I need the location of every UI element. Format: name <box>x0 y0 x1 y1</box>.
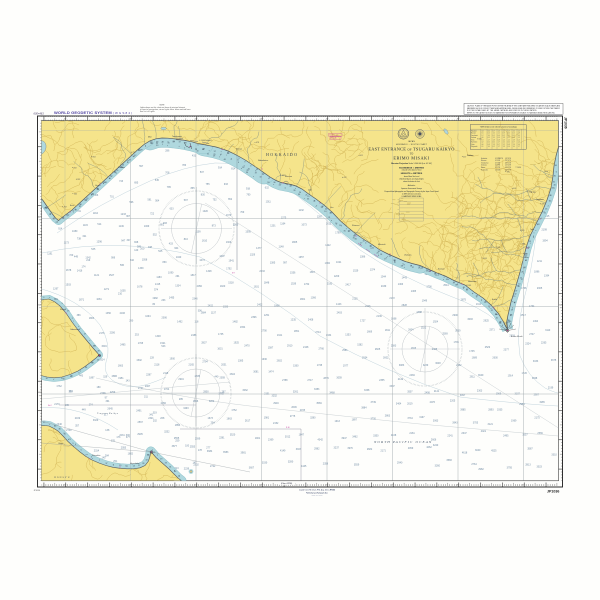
svg-text:28: 28 <box>521 272 523 274</box>
svg-text:25: 25 <box>529 241 531 243</box>
svg-text:Shiriya: Shiriya <box>60 308 67 311</box>
svg-text:198: 198 <box>69 391 74 394</box>
svg-text:1201: 1201 <box>270 225 276 228</box>
svg-text:2175: 2175 <box>534 416 540 419</box>
svg-text:Usujiri: Usujiri <box>95 184 101 187</box>
svg-text:2863: 2863 <box>385 414 391 417</box>
svg-text:3040: 3040 <box>475 449 481 452</box>
svg-text:1334: 1334 <box>175 284 181 287</box>
svg-text:274: 274 <box>89 403 94 406</box>
svg-text:1183: 1183 <box>156 276 162 279</box>
svg-text:2837: 2837 <box>201 341 207 344</box>
svg-text:1.5: 1.5 <box>493 133 495 135</box>
svg-text:1969: 1969 <box>511 420 517 423</box>
svg-text:2910: 2910 <box>287 344 293 347</box>
svg-text:1339: 1339 <box>138 267 144 270</box>
svg-text:26: 26 <box>313 201 315 203</box>
svg-text:1560: 1560 <box>233 224 239 227</box>
svg-text:27: 27 <box>403 265 405 267</box>
svg-text:2775: 2775 <box>290 415 296 418</box>
svg-text:639: 639 <box>542 204 545 206</box>
svg-text:1882: 1882 <box>128 452 134 455</box>
svg-text:27: 27 <box>330 212 332 214</box>
svg-text:2176: 2176 <box>99 332 105 335</box>
svg-text:202: 202 <box>153 420 158 423</box>
svg-text:34: 34 <box>259 177 261 179</box>
svg-text:843: 843 <box>525 253 528 255</box>
svg-text:1610: 1610 <box>202 240 208 243</box>
svg-text:2171: 2171 <box>381 450 387 453</box>
svg-text:Urakawa: Urakawa <box>404 254 412 257</box>
svg-text:933: 933 <box>224 183 229 186</box>
svg-text:3947: 3947 <box>341 437 347 440</box>
svg-text:R 40: R 40 <box>286 427 290 429</box>
svg-text:2170: 2170 <box>54 403 60 406</box>
svg-text:3981: 3981 <box>241 452 247 455</box>
svg-text:386: 386 <box>77 314 82 317</box>
svg-text:42°: 42° <box>38 217 41 219</box>
svg-text:863: 863 <box>163 261 168 264</box>
svg-text:0.8: 0.8 <box>508 144 510 146</box>
svg-text:2934: 2934 <box>362 357 368 360</box>
svg-text:28: 28 <box>97 350 99 352</box>
svg-text:2555: 2555 <box>190 445 196 448</box>
svg-text:5: 5 <box>220 155 221 157</box>
svg-text:2484: 2484 <box>409 374 415 377</box>
svg-text:2033: 2033 <box>259 270 265 273</box>
svg-text:42°: 42° <box>559 217 562 219</box>
svg-text:2737: 2737 <box>138 387 144 390</box>
svg-text:2964: 2964 <box>519 403 525 406</box>
svg-text:6: 6 <box>197 145 198 147</box>
svg-text:1466: 1466 <box>201 140 205 142</box>
svg-text:13: 13 <box>97 359 99 361</box>
svg-text:JP1036: JP1036 <box>34 490 40 492</box>
svg-text:25: 25 <box>389 256 391 258</box>
svg-text:1.8: 1.8 <box>493 139 495 141</box>
svg-text:18: 18 <box>339 225 341 227</box>
svg-text:7: 7 <box>157 455 158 457</box>
svg-text:2617: 2617 <box>245 420 251 423</box>
svg-text:143°: 143° <box>260 118 264 120</box>
svg-text:1977: 1977 <box>343 365 349 368</box>
svg-text:2747: 2747 <box>529 333 535 336</box>
svg-text:3033: 3033 <box>533 360 539 363</box>
svg-text:3338: 3338 <box>364 389 370 392</box>
svg-text:1148: 1148 <box>279 246 285 249</box>
svg-text:3884: 3884 <box>361 407 367 410</box>
svg-text:290: 290 <box>129 320 134 323</box>
svg-text:1.8: 1.8 <box>518 133 520 135</box>
svg-text:40: 40 <box>554 184 556 186</box>
svg-text:Mercator Projection Scale 1:5: Mercator Projection Scale 1:500 000 (Lat… <box>391 162 432 165</box>
svg-text:1868: 1868 <box>274 304 280 307</box>
svg-text:1287: 1287 <box>317 216 323 219</box>
svg-text:3048: 3048 <box>435 362 441 365</box>
svg-text:1612: 1612 <box>326 222 332 225</box>
svg-text:15: 15 <box>362 241 364 243</box>
svg-text:1668: 1668 <box>391 317 397 320</box>
svg-text:142°: 142° <box>129 118 133 120</box>
svg-text:1738: 1738 <box>317 364 323 367</box>
svg-text:3383: 3383 <box>314 388 320 391</box>
svg-text:1766: 1766 <box>521 287 527 290</box>
svg-text:1654: 1654 <box>240 326 246 329</box>
svg-text:HONSYU: HONSYU <box>54 476 71 479</box>
svg-text:Shiraoi: Shiraoi <box>236 148 242 151</box>
svg-text:174: 174 <box>82 265 87 268</box>
svg-text:535: 535 <box>91 248 96 251</box>
svg-text:1.0: 1.0 <box>488 135 490 137</box>
svg-text:2314: 2314 <box>94 449 100 452</box>
svg-text:3750: 3750 <box>371 418 377 421</box>
svg-text:0.7: 0.7 <box>508 130 510 132</box>
svg-text:914: 914 <box>218 167 223 170</box>
svg-text:2417: 2417 <box>345 283 351 286</box>
svg-text:19: 19 <box>160 459 162 461</box>
svg-text:1090: 1090 <box>517 167 521 169</box>
svg-text:2682: 2682 <box>367 448 373 451</box>
svg-text:1848: 1848 <box>264 282 270 285</box>
svg-text:0.9: 0.9 <box>508 146 510 148</box>
svg-text:HOKKAIDO: HOKKAIDO <box>266 152 298 157</box>
svg-text:15: 15 <box>435 275 437 277</box>
svg-text:Tomakomai: Tomakomai <box>481 162 489 164</box>
svg-text:38: 38 <box>455 284 457 286</box>
svg-text:590: 590 <box>507 171 510 173</box>
svg-text:2907: 2907 <box>145 385 151 388</box>
svg-text:3557: 3557 <box>522 434 528 437</box>
svg-text:457: 457 <box>463 156 466 158</box>
svg-text:Hiroo: Hiroo <box>524 256 529 259</box>
svg-text:0.5: 0.5 <box>513 135 515 137</box>
svg-text:2602: 2602 <box>277 359 283 362</box>
svg-text:1296: 1296 <box>97 241 103 244</box>
svg-text:39: 39 <box>293 190 295 192</box>
svg-text:3280: 3280 <box>288 460 294 463</box>
svg-text:2604: 2604 <box>408 329 414 332</box>
svg-text:2377: 2377 <box>504 349 510 352</box>
svg-text:Urakawa: Urakawa <box>471 137 476 139</box>
svg-text:Usu: Usu <box>330 207 333 209</box>
svg-text:16: 16 <box>372 247 374 249</box>
svg-text:1097: 1097 <box>219 255 225 258</box>
svg-text:4: 4 <box>50 213 51 215</box>
svg-text:40: 40 <box>224 159 226 161</box>
svg-text:Tomakomai: Tomakomai <box>172 136 182 138</box>
svg-text:3252: 3252 <box>272 394 278 397</box>
svg-text:0.2: 0.2 <box>503 135 505 137</box>
svg-text:JP1036: JP1036 <box>564 117 568 129</box>
svg-text:947: 947 <box>121 240 126 243</box>
svg-text:10: 10 <box>324 211 326 213</box>
svg-text:848: 848 <box>134 241 139 244</box>
svg-text:4059: 4059 <box>408 447 414 450</box>
svg-text:37: 37 <box>394 262 396 264</box>
svg-text:1093: 1093 <box>282 175 286 177</box>
svg-text:267: 267 <box>222 391 227 394</box>
svg-text:2402: 2402 <box>257 304 263 307</box>
svg-text:25: 25 <box>94 346 96 348</box>
svg-text:4525: 4525 <box>491 450 497 453</box>
svg-text:412: 412 <box>344 177 347 179</box>
svg-text:31: 31 <box>169 467 171 469</box>
svg-text:1341: 1341 <box>277 334 283 337</box>
svg-text:41°59′N: 41°59′N <box>495 165 500 167</box>
svg-text:365: 365 <box>74 193 77 195</box>
svg-text:2491: 2491 <box>136 409 142 412</box>
svg-text:2900: 2900 <box>452 314 458 317</box>
svg-text:19: 19 <box>179 141 181 143</box>
svg-text:2241: 2241 <box>447 434 453 437</box>
svg-text:10: 10 <box>485 301 487 303</box>
svg-text:35: 35 <box>256 169 258 171</box>
svg-text:1.1: 1.1 <box>498 133 500 135</box>
svg-text:306: 306 <box>198 310 203 313</box>
svg-text:1.2: 1.2 <box>503 144 505 146</box>
svg-text:2335: 2335 <box>195 375 201 378</box>
svg-text:1.4: 1.4 <box>503 139 505 141</box>
svg-text:1.5: 1.5 <box>503 142 505 144</box>
svg-text:29: 29 <box>246 170 248 172</box>
svg-text:20: 20 <box>377 253 379 255</box>
svg-text:1897: 1897 <box>89 377 95 380</box>
svg-text:JAPAN: JAPAN <box>408 140 416 143</box>
svg-text:2132: 2132 <box>456 364 462 367</box>
svg-text:1394: 1394 <box>544 274 550 277</box>
svg-text:2369: 2369 <box>268 439 274 442</box>
svg-text:1850: 1850 <box>175 424 181 427</box>
svg-text:Tomakomai: Tomakomai <box>471 135 478 137</box>
svg-text:25: 25 <box>56 222 58 224</box>
svg-text:23: 23 <box>537 224 539 226</box>
svg-text:1058: 1058 <box>142 259 148 262</box>
svg-text:8: 8 <box>435 273 436 275</box>
svg-text:1.2: 1.2 <box>508 139 510 141</box>
svg-text:2165: 2165 <box>189 363 195 366</box>
svg-text:1073: 1073 <box>301 224 307 227</box>
svg-text:33: 33 <box>446 279 448 281</box>
svg-text:140: 140 <box>134 249 139 252</box>
svg-text:2324: 2324 <box>525 343 531 346</box>
svg-text:1900: 1900 <box>170 357 176 360</box>
svg-text:22: 22 <box>524 267 526 269</box>
svg-text:37: 37 <box>521 279 523 281</box>
svg-text:1021: 1021 <box>336 261 342 264</box>
svg-text:1924: 1924 <box>433 320 439 323</box>
svg-text:2495: 2495 <box>503 435 509 438</box>
svg-text:3848: 3848 <box>532 377 538 380</box>
svg-text:1985: 1985 <box>539 401 545 404</box>
svg-text:918: 918 <box>246 188 251 191</box>
svg-text:35: 35 <box>353 238 355 240</box>
svg-text:3: 3 <box>43 297 44 299</box>
svg-text:1333: 1333 <box>223 306 229 309</box>
svg-text:1865: 1865 <box>292 241 298 244</box>
svg-text:1815: 1815 <box>411 347 417 350</box>
svg-text:1560: 1560 <box>293 364 299 367</box>
svg-text:Taiki: Taiki <box>530 229 534 231</box>
svg-text:564: 564 <box>155 200 160 203</box>
svg-text:18: 18 <box>267 182 269 184</box>
svg-text:1080: 1080 <box>72 230 78 233</box>
svg-text:2355: 2355 <box>379 379 385 382</box>
svg-text:0.1: 0.1 <box>508 137 510 139</box>
svg-text:1.4: 1.4 <box>498 130 500 132</box>
svg-text:12: 12 <box>134 155 136 157</box>
svg-text:0.1: 0.1 <box>493 135 495 137</box>
svg-text:1901: 1901 <box>255 437 261 440</box>
svg-text:200: 200 <box>140 248 145 251</box>
svg-text:142°42′E: 142°42′E <box>505 160 511 162</box>
svg-text:1544: 1544 <box>381 275 387 278</box>
svg-text:1353: 1353 <box>345 333 351 336</box>
svg-text:118: 118 <box>194 320 198 323</box>
svg-text:1539: 1539 <box>291 282 297 285</box>
svg-text:3: 3 <box>103 183 104 185</box>
svg-text:1762: 1762 <box>56 385 62 388</box>
svg-text:3943: 3943 <box>452 421 458 424</box>
svg-text:HEIGHTS in METRES: HEIGHTS in METRES <box>401 173 423 175</box>
svg-text:1109: 1109 <box>195 231 201 234</box>
svg-text:2126: 2126 <box>365 305 371 308</box>
svg-text:0.4: 0.4 <box>518 139 520 141</box>
svg-text:2118: 2118 <box>154 363 160 366</box>
svg-text:173: 173 <box>116 436 121 439</box>
svg-text:0.0: 0.0 <box>508 133 510 135</box>
svg-text:2800: 2800 <box>203 390 209 393</box>
svg-text:NORTH PACIFIC OCEAN: NORTH PACIFIC OCEAN <box>373 440 432 444</box>
svg-text:24: 24 <box>353 235 355 237</box>
svg-text:0.7: 0.7 <box>493 130 495 132</box>
svg-text:2919: 2919 <box>178 378 184 381</box>
svg-text:3734: 3734 <box>407 417 413 420</box>
svg-text:33: 33 <box>165 463 167 465</box>
svg-text:1941: 1941 <box>229 259 235 262</box>
svg-text:2569: 2569 <box>537 432 543 435</box>
svg-text:37: 37 <box>214 151 216 153</box>
svg-text:20: 20 <box>174 471 176 473</box>
svg-text:15: 15 <box>369 246 371 248</box>
svg-text:1.8: 1.8 <box>503 146 505 148</box>
svg-text:2152: 2152 <box>273 422 279 425</box>
svg-text:1.3: 1.3 <box>518 137 520 139</box>
svg-text:Date: Date <box>308 189 312 192</box>
svg-text:37: 37 <box>418 267 420 269</box>
svg-text:141°13′E: 141°13′E <box>505 167 511 169</box>
svg-text:Muroran: Muroran <box>471 133 476 135</box>
svg-text:2239: 2239 <box>184 467 190 470</box>
svg-text:4262: 4262 <box>426 446 432 449</box>
svg-text:26: 26 <box>545 208 547 210</box>
svg-text:19: 19 <box>513 296 515 298</box>
svg-text:1209: 1209 <box>334 275 340 278</box>
svg-text:411: 411 <box>360 155 363 157</box>
svg-text:0.6: 0.6 <box>482 144 484 146</box>
svg-text:319: 319 <box>153 412 158 415</box>
svg-text:143°21′E: 143°21′E <box>505 162 511 164</box>
svg-text:3350: 3350 <box>373 434 379 437</box>
svg-text:284: 284 <box>105 455 110 458</box>
svg-text:277: 277 <box>206 447 211 450</box>
svg-text:Erimo: Erimo <box>492 298 497 301</box>
svg-text:4: 4 <box>438 275 439 277</box>
svg-text:1663: 1663 <box>118 365 124 368</box>
svg-text:2893: 2893 <box>488 408 494 411</box>
svg-text:3093: 3093 <box>467 318 473 321</box>
svg-text:28: 28 <box>184 142 186 144</box>
svg-text:755: 755 <box>206 183 211 186</box>
svg-text:2306: 2306 <box>110 332 116 335</box>
svg-text:814: 814 <box>231 167 236 170</box>
svg-text:29: 29 <box>213 154 215 156</box>
svg-text:2788: 2788 <box>282 379 288 382</box>
svg-text:Mitsuishi: Mitsuishi <box>378 243 386 246</box>
svg-text:Shiriyazaki: Shiriyazaki <box>471 146 478 148</box>
svg-text:2790: 2790 <box>261 329 267 332</box>
svg-text:552: 552 <box>153 234 158 237</box>
svg-text:30: 30 <box>45 207 47 209</box>
svg-text:Hachinohe: Hachinohe <box>481 169 488 171</box>
svg-text:22: 22 <box>56 299 58 301</box>
svg-text:597: 597 <box>139 165 144 168</box>
svg-text:259: 259 <box>175 439 180 442</box>
svg-text:33: 33 <box>466 289 468 291</box>
svg-text:1688: 1688 <box>416 311 422 314</box>
svg-text:1811: 1811 <box>385 329 391 332</box>
svg-text:147: 147 <box>193 461 198 464</box>
svg-text:2125: 2125 <box>352 297 358 300</box>
svg-text:1149: 1149 <box>119 225 125 228</box>
svg-text:19: 19 <box>384 259 386 261</box>
svg-text:3237: 3237 <box>334 447 340 450</box>
svg-text:19: 19 <box>213 156 215 158</box>
svg-text:525: 525 <box>158 250 163 253</box>
svg-text:41°12′N: 41°12′N <box>495 167 500 169</box>
svg-text:31: 31 <box>52 219 54 221</box>
svg-text:M 7: M 7 <box>232 273 235 275</box>
svg-text:1790: 1790 <box>335 232 341 235</box>
svg-text:3520: 3520 <box>230 433 236 436</box>
svg-text:1334: 1334 <box>326 334 332 337</box>
svg-text:2287: 2287 <box>146 374 152 377</box>
svg-text:1.6: 1.6 <box>518 144 520 146</box>
svg-text:1211: 1211 <box>537 260 543 263</box>
svg-text:2738: 2738 <box>100 392 106 395</box>
svg-text:3705: 3705 <box>473 421 479 424</box>
svg-text:210: 210 <box>118 293 123 296</box>
svg-text:1191: 1191 <box>47 253 53 256</box>
svg-text:2581: 2581 <box>342 349 348 352</box>
svg-text:178: 178 <box>198 449 203 452</box>
svg-text:291: 291 <box>176 275 181 278</box>
svg-text:29: 29 <box>511 310 513 312</box>
svg-text:4149: 4149 <box>280 450 286 453</box>
svg-text:204: 204 <box>211 421 216 424</box>
svg-text:2346: 2346 <box>192 298 198 301</box>
svg-text:3310: 3310 <box>551 453 557 456</box>
svg-text:1847: 1847 <box>299 433 305 436</box>
svg-text:34: 34 <box>54 425 56 427</box>
svg-text:40: 40 <box>552 188 554 190</box>
svg-text:2142: 2142 <box>398 378 404 381</box>
svg-text:3493: 3493 <box>183 407 189 410</box>
svg-text:597: 597 <box>184 199 189 202</box>
svg-text:1708: 1708 <box>138 342 144 345</box>
svg-text:1925: 1925 <box>234 342 240 345</box>
svg-text:4: 4 <box>378 255 379 257</box>
svg-text:514: 514 <box>97 223 102 226</box>
